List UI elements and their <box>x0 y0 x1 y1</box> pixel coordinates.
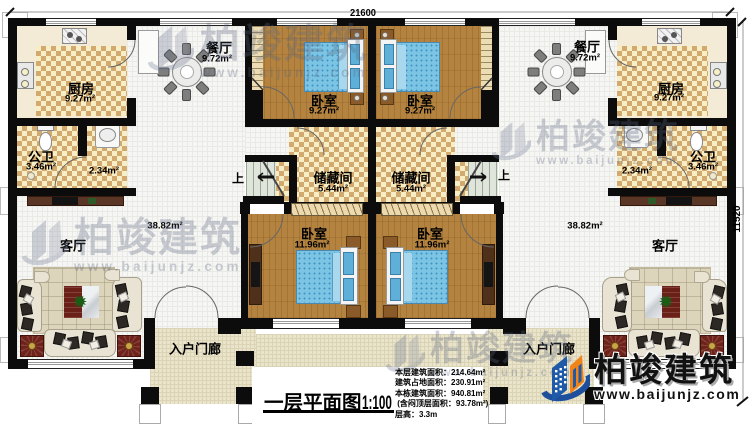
svg-text:11520: 11520 <box>732 205 743 232</box>
svg-text:21600: 21600 <box>350 8 376 19</box>
